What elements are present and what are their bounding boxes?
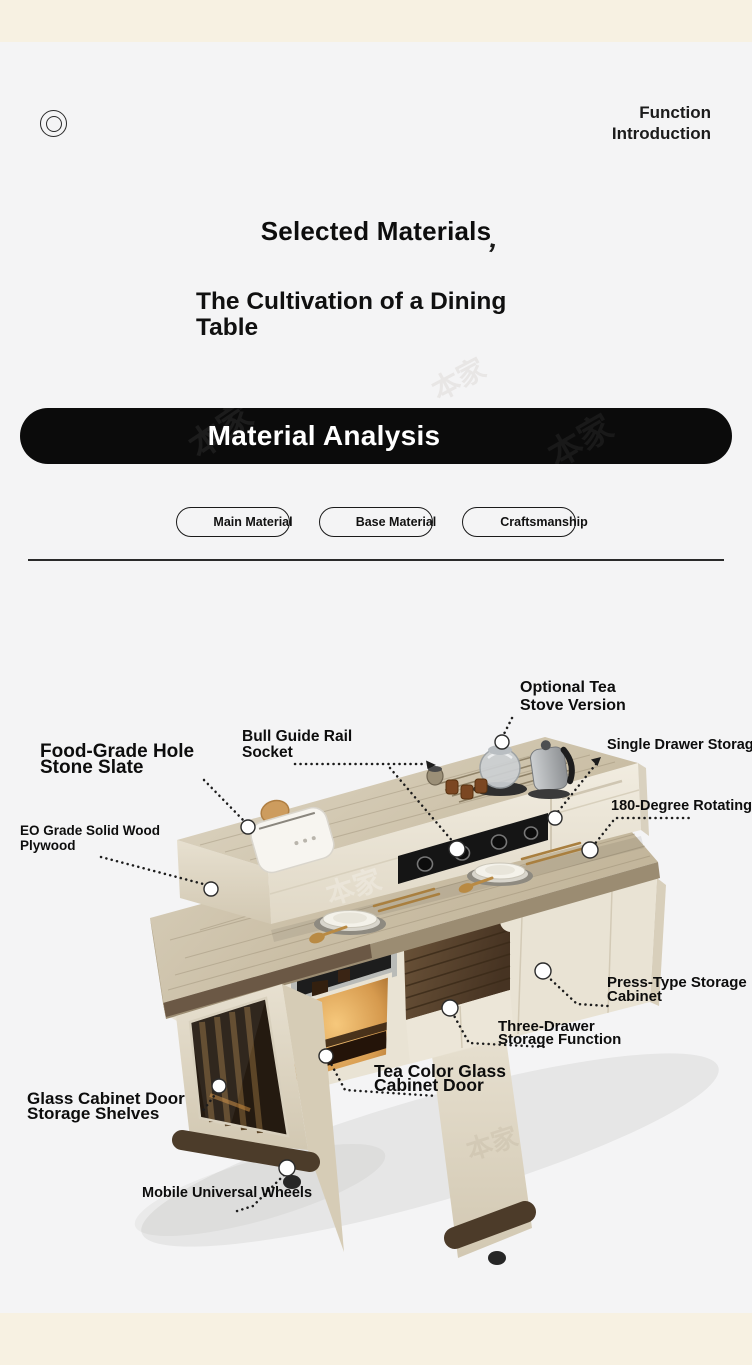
tab-base-material-label: Base Material (356, 515, 437, 529)
callout-tea-color-glass-door: Tea Color Glass Cabinet Door (374, 1065, 506, 1092)
material-analysis-banner: Material Analysis (20, 408, 732, 464)
brand-ring-inner-icon (46, 116, 62, 132)
watermark: 本家 (424, 347, 492, 409)
dot-wheels (279, 1160, 295, 1176)
banner-label: Material Analysis (208, 420, 441, 452)
callout-glass-door-shelves: Glass Cabinet Door Storage Shelves (27, 1092, 185, 1121)
tab-base-material[interactable]: Base Material (319, 507, 433, 537)
dot-glass-shelves (212, 1079, 226, 1093)
callout-single-drawer: Single Drawer Storage Area (607, 737, 752, 753)
dot-eo-grade (204, 882, 218, 896)
brand-ring-icon (40, 110, 67, 137)
dot-optional-tea (495, 735, 509, 749)
page-title: Selected Materials (0, 216, 752, 247)
dot-bull-guide (449, 841, 465, 857)
callout-mobile-wheels: Mobile Universal Wheels (142, 1185, 312, 1201)
function-introduction-label: Function Introduction (612, 102, 711, 144)
product-illustration: 本家 本家 (0, 600, 752, 1320)
callout-press-type-cabinet: Press-Type Storage Cabinet (607, 976, 747, 1004)
callout-optional-tea-stove: Optional Tea Stove Version (520, 679, 626, 714)
callout-three-drawer-storage: Three-Drawer Storage Function (498, 1020, 621, 1046)
tab-craftsmanship-label: Craftsmanship (500, 515, 588, 529)
top-band (0, 0, 752, 42)
dot-three-drawer (442, 1000, 458, 1016)
callout-bull-guide-rail-socket: Bull Guide Rail Socket (242, 729, 352, 761)
dot-tea-glass (319, 1049, 333, 1063)
bottom-band (0, 1313, 752, 1365)
function-introduction-line2: Introduction (612, 124, 711, 143)
dot-press-type (535, 963, 551, 979)
callout-rotating-table: 180-Degree Rotating Table (611, 798, 752, 814)
tab-craftsmanship[interactable]: Craftsmanship (462, 507, 576, 537)
function-introduction-line1: Function (639, 103, 711, 122)
dot-food-grade (241, 820, 255, 834)
dot-single-drawer (548, 811, 562, 825)
tab-main-material-label: Main Material (213, 515, 292, 529)
callout-eo-grade-plywood: EO Grade Solid Wood Plywood (20, 824, 160, 853)
section-divider (28, 559, 724, 561)
tab-main-material[interactable]: Main Material (176, 507, 290, 537)
dot-rotating-table (582, 842, 598, 858)
callout-food-grade-slate: Food-Grade Hole Stone Slate (40, 744, 194, 775)
page-subtitle: The Cultivation of a Dining Table (196, 289, 508, 341)
caster-wheel-icon (488, 1251, 506, 1265)
